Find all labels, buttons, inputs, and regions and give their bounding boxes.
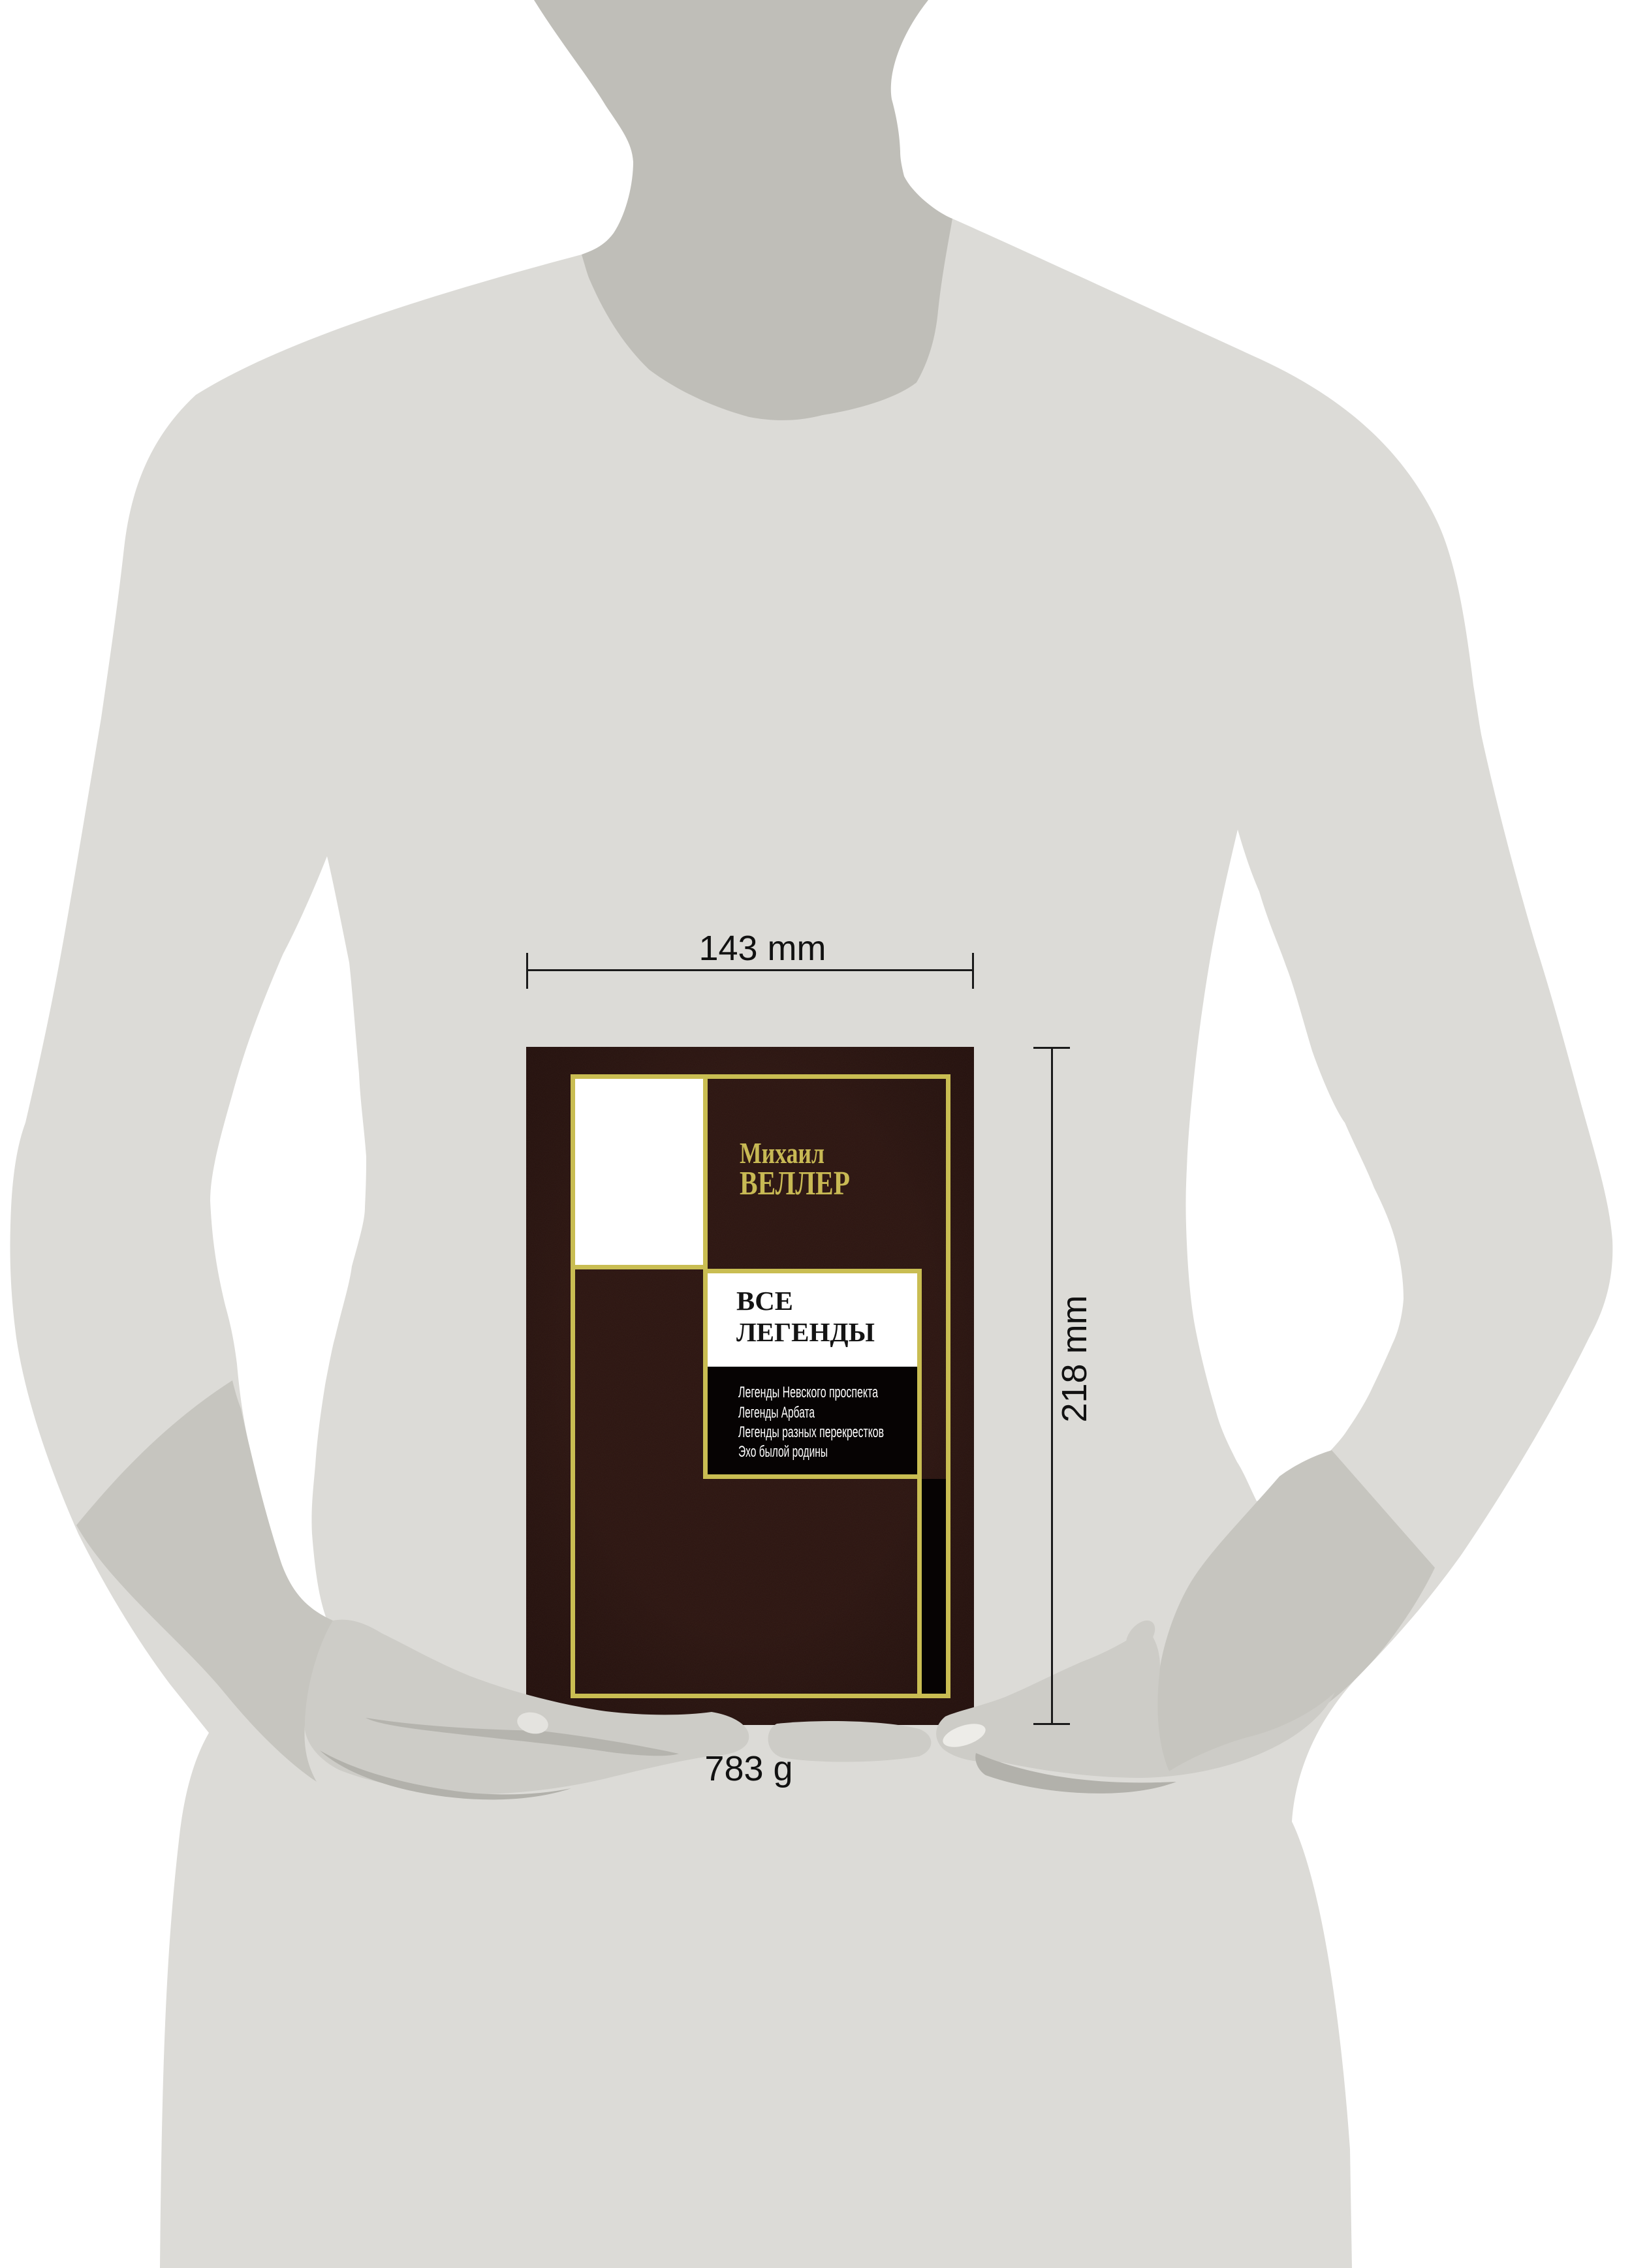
svg-text:Легенды Арбата: Легенды Арбата bbox=[738, 1404, 815, 1421]
svg-text:783 g: 783 g bbox=[704, 1749, 792, 1788]
svg-text:Эхо былой родины: Эхо былой родины bbox=[738, 1443, 828, 1461]
svg-text:Легенды Невского проспекта: Легенды Невского проспекта bbox=[738, 1384, 878, 1401]
svg-text:218 mm: 218 mm bbox=[1055, 1295, 1094, 1422]
svg-text:ВСЕ: ВСЕ bbox=[736, 1286, 793, 1316]
svg-text:ВЕЛЛЕР: ВЕЛЛЕР bbox=[740, 1165, 850, 1202]
svg-text:Легенды разных перекрестков: Легенды разных перекрестков bbox=[738, 1423, 884, 1441]
svg-text:ЛЕГЕНДЫ: ЛЕГЕНДЫ bbox=[736, 1317, 875, 1347]
svg-text:143 mm: 143 mm bbox=[698, 929, 826, 968]
